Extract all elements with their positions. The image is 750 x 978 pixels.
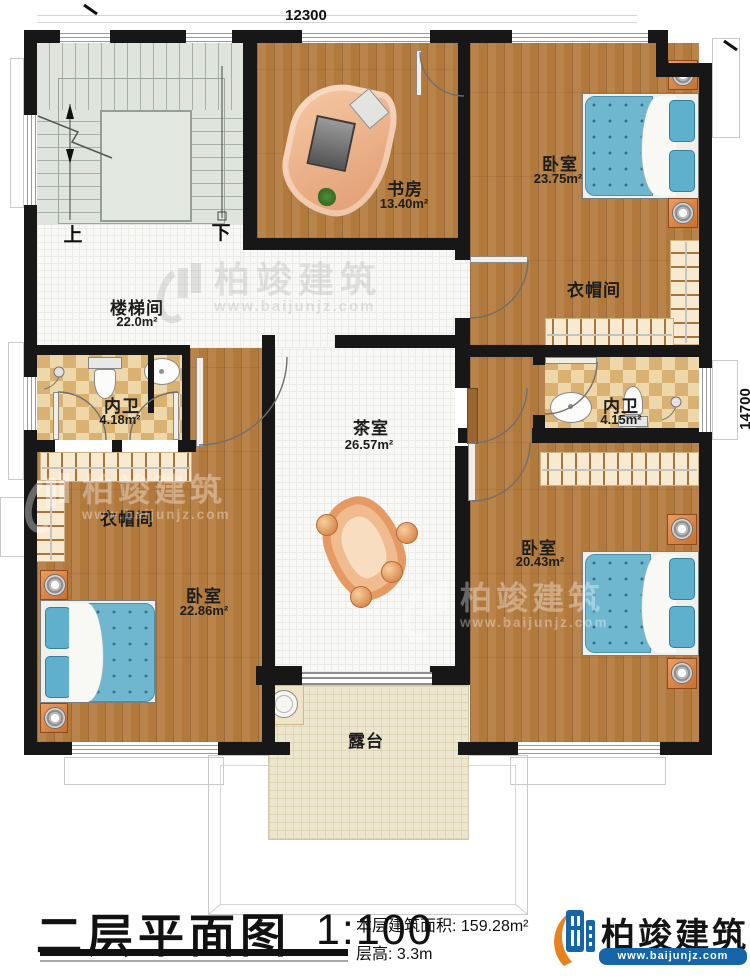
room-area-study: 13.40m² <box>380 196 428 211</box>
room-area-bath-e: 4.15m² <box>600 412 641 427</box>
room-area-bedroom-sw: 22.86m² <box>180 603 228 618</box>
company-logo-icon <box>548 906 596 972</box>
company-website: www.baijunjz.com <box>599 948 747 965</box>
stairs-up-label: 上 <box>63 220 82 247</box>
room-label-cloakroom-w: 衣帽间 <box>100 505 154 530</box>
title-underline-thick <box>40 949 348 956</box>
title-underline-thin <box>40 960 348 962</box>
floor-height-value: 3.3m <box>397 946 433 963</box>
stair-symbols <box>38 66 226 220</box>
stairs-down-label: 下 <box>211 218 230 245</box>
dimension-top: 12300 <box>276 7 336 24</box>
floor-area-value: 159.28m² <box>461 918 529 935</box>
dimension-right: 14700 <box>737 377 750 441</box>
plan-title: 二层平面图 <box>36 900 291 966</box>
plan-linework <box>0 0 750 978</box>
room-area-bedroom-ne: 23.75m² <box>534 171 582 186</box>
floor-height-label: 层高: <box>356 946 392 963</box>
door-arcs <box>58 52 597 501</box>
floor-area-row: 本层建筑面积: 159.28m² <box>356 912 529 936</box>
floor-area-label: 本层建筑面积: <box>356 918 456 935</box>
room-area-tea-room: 26.57m² <box>345 437 393 452</box>
floor-height-row: 层高: 3.3m <box>356 940 432 964</box>
room-label-terrace: 露台 <box>348 727 384 752</box>
room-area-stairwell: 22.0m² <box>116 314 157 329</box>
room-area-bedroom-se: 20.43m² <box>516 554 564 569</box>
floor-plan-canvas: 书房 13.40m² 卧室 23.75m² 衣帽间 楼梯间 22.0m² 内卫 … <box>0 0 750 978</box>
corner-tick-marks <box>84 5 737 50</box>
room-label-cloakroom-e: 衣帽间 <box>567 276 621 301</box>
room-area-bath-w: 4.18m² <box>99 412 140 427</box>
room-label-tea-room: 茶室 <box>353 414 389 439</box>
